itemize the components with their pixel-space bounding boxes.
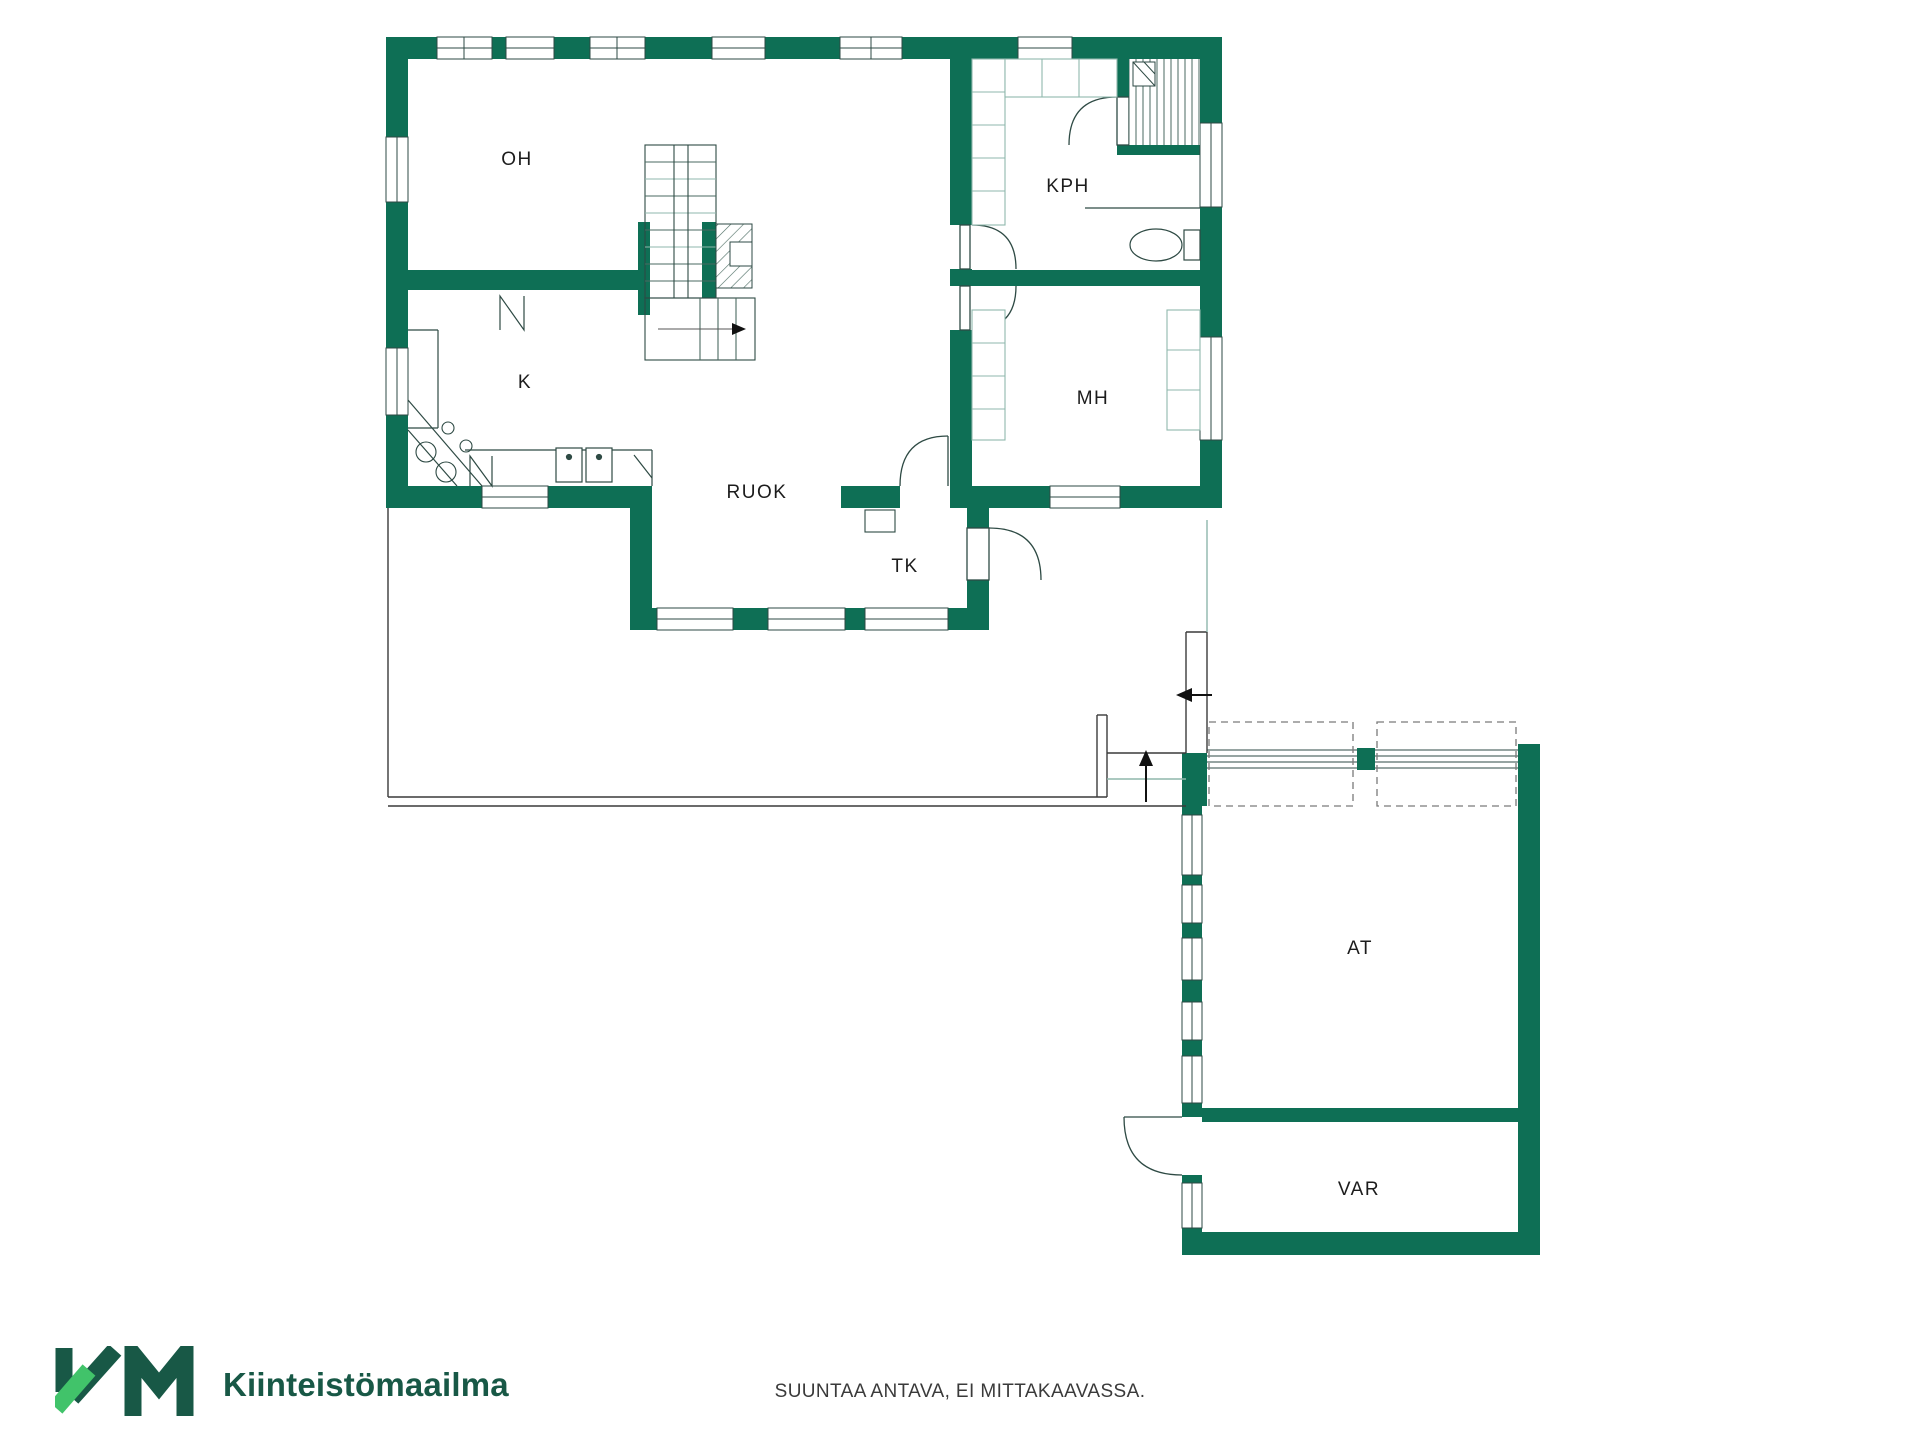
entry-arrow-up [1139,750,1153,802]
tk-closet [865,510,895,532]
kitchen-sink [556,448,612,482]
room-label-tk: TK [891,556,918,578]
room-label-mh: MH [1077,388,1110,410]
room-label-at: AT [1347,938,1373,960]
stove [416,422,472,482]
room-label-ruok: RUOK [727,482,788,504]
windows [386,37,1222,1228]
room-label-k: K [518,372,532,394]
sauna-benches [1129,59,1200,145]
floorplan-page: OH KPH K MH RUOK TK AT VAR Kiinteistömaa… [0,0,1920,1440]
walls [386,37,1540,1255]
fridge-icon [500,296,524,330]
dishwasher-icon [470,456,492,486]
km-logo-icon [55,1346,195,1418]
floorplan-drawing [0,0,1920,1440]
toilet [1130,229,1200,261]
stairs-direction-arrow [732,323,746,335]
room-label-kph: KPH [1046,176,1090,198]
terrace-outline [388,508,1207,806]
brand-name: Kiinteistömaailma [223,1366,509,1404]
kph-cabinets [972,59,1117,225]
fireplace [716,224,752,288]
room-label-var: VAR [1338,1179,1380,1201]
mh-wardrobes [972,310,1200,440]
disclaimer-text: SUUNTAA ANTAVA, EI MITTAKAAVASSA. [775,1381,1146,1403]
brand-logo: Kiinteistömaailma [55,1346,509,1418]
room-label-oh: OH [501,149,533,171]
